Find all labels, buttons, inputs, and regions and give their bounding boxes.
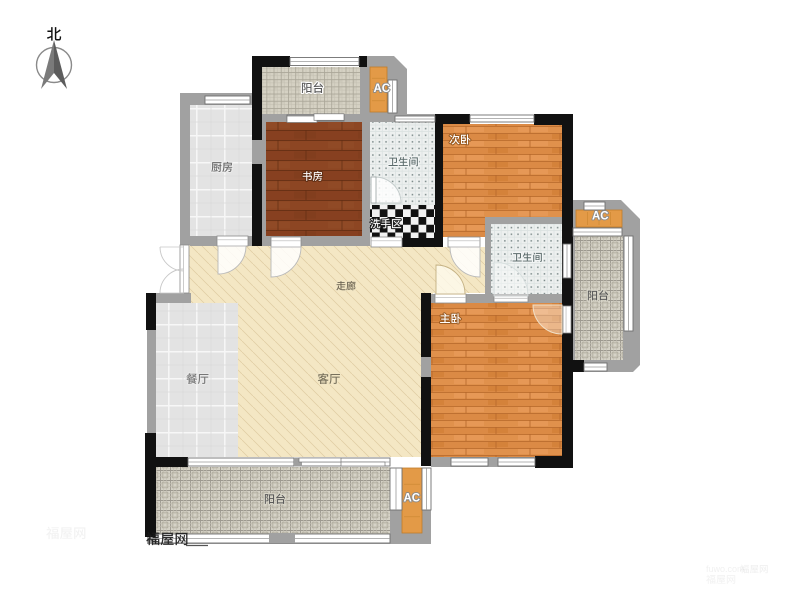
svg-text:AC: AC	[374, 83, 391, 95]
svg-text:AC: AC	[404, 493, 421, 505]
svg-text:AC: AC	[592, 211, 609, 223]
svg-text:fuwo.com: fuwo.com	[706, 564, 745, 574]
